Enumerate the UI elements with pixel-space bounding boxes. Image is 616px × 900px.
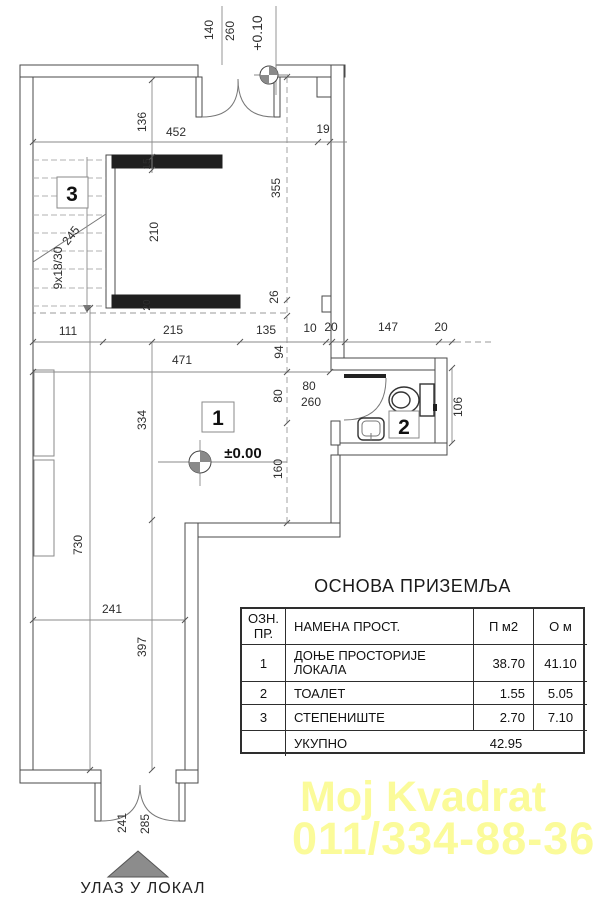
- table-row-2-area: 1.55: [474, 682, 534, 705]
- table-row-1-id: 1: [242, 645, 286, 682]
- dim-top-door-height: 260: [223, 21, 237, 41]
- dim-241-entrance: 241: [115, 813, 129, 833]
- floor-plan-sheet: 140 260 +0.10 136 452 19 15 210 20 9x18/…: [0, 0, 616, 900]
- toilet-door-width-label: 80: [302, 379, 316, 393]
- dim-452: 452: [166, 125, 186, 139]
- toilet-door-height-label: 260: [301, 395, 321, 409]
- dim-20b: 20: [434, 320, 448, 334]
- top-door-left-leaf: [196, 77, 202, 117]
- dim-136: 136: [135, 112, 149, 132]
- table-total-row: УКУПНО 42.95: [286, 731, 587, 756]
- wc-bowl-inner-icon: [392, 392, 410, 408]
- dim-94: 94: [272, 345, 286, 359]
- table-header-purpose: НАМЕНА ПРОСТ.: [286, 609, 474, 645]
- dim-160: 160: [271, 459, 285, 479]
- room-number-hall: 1: [212, 407, 224, 430]
- dim-106: 106: [451, 397, 465, 417]
- entrance-door-right-leaf: [179, 783, 185, 821]
- table-header-perimeter: О м: [534, 609, 587, 645]
- stair-run-label: 245: [59, 223, 83, 248]
- table-row-1-perimeter: 41.10: [534, 645, 587, 682]
- room-number-stairs: 3: [66, 183, 78, 206]
- dim-135: 135: [256, 323, 276, 337]
- dim-top-door-width: 140: [202, 20, 216, 40]
- dim-215: 215: [163, 323, 183, 337]
- top-door-left-swing: [202, 79, 238, 117]
- level-top-label: +0.10: [249, 15, 265, 51]
- dim-334: 334: [135, 410, 149, 430]
- table-header-designation: ОЗН. ПР.: [242, 609, 286, 645]
- table-total-label: УКУПНО: [294, 736, 347, 751]
- entrance-door-left-leaf: [95, 783, 101, 821]
- entrance-arrow-icon: [108, 851, 168, 877]
- top-door-right-leaf: [274, 77, 280, 117]
- table-row-2-id: 2: [242, 682, 286, 705]
- wc-tank-icon: [420, 384, 434, 416]
- partition-top-bar: [112, 155, 222, 168]
- table-row-3-perimeter: 7.10: [534, 705, 587, 731]
- table-total-area: 42.95: [456, 736, 556, 751]
- dim-285-entrance: 285: [138, 814, 152, 834]
- floor-plan-drawing: 140 260 +0.10 136 452 19 15 210 20 9x18/…: [0, 0, 616, 900]
- table-total-id-cell: [242, 731, 286, 756]
- dim-147: 147: [378, 320, 398, 334]
- dim-111: 111: [59, 324, 78, 338]
- table-row-2-name: ТОАЛЕТ: [286, 682, 474, 705]
- table-row-3-id: 3: [242, 705, 286, 731]
- table-row-1-area: 38.70: [474, 645, 534, 682]
- dim-80: 80: [271, 389, 285, 403]
- plan-labels: 140 260 +0.10 136 452 19 15 210 20 9x18/…: [51, 15, 465, 897]
- dim-355: 355: [269, 178, 283, 198]
- watermark-phone: 011/334-88-36: [292, 818, 595, 859]
- dim-397: 397: [135, 637, 149, 657]
- dim-19: 19: [316, 122, 330, 136]
- table-row-2-perimeter: 5.05: [534, 682, 587, 705]
- dim-26: 26: [267, 290, 281, 304]
- dim-10: 10: [303, 321, 317, 335]
- partition-bottom-bar: [112, 295, 240, 308]
- entrance-label: УЛАЗ У ЛОКАЛ: [80, 880, 205, 897]
- table-row-3-area: 2.70: [474, 705, 534, 731]
- wc-flush-icon: [433, 404, 437, 411]
- dim-730: 730: [71, 535, 85, 555]
- watermark-name: Moj Kvadrat: [292, 778, 595, 818]
- stair-steps-label: 9x18/30: [51, 246, 65, 289]
- level-zero-label: ±0.00: [224, 445, 261, 462]
- dim-15: 15: [142, 158, 153, 170]
- table-row-3-name: СТЕПЕНИШТЕ: [286, 705, 474, 731]
- dim-241-mid: 241: [102, 602, 122, 616]
- table-row-1-name: ДОЊЕ ПРОСТОРИЈЕ ЛОКАЛА: [286, 645, 474, 682]
- dim-210: 210: [147, 222, 161, 242]
- dim-471: 471: [172, 353, 192, 367]
- toilet-door-swing: [344, 378, 386, 420]
- room-number-toilet: 2: [398, 416, 410, 439]
- dim-20-wall: 20: [142, 299, 153, 311]
- wall-niches: [34, 370, 54, 556]
- top-door-right-swing: [238, 79, 274, 117]
- watermark: Moj Kvadrat 011/334-88-36: [292, 778, 595, 859]
- table-header-area: П м2: [474, 609, 534, 645]
- area-table: ОЗН. ПР. НАМЕНА ПРОСТ. П м2 О м 1 ДОЊЕ П…: [240, 607, 585, 754]
- dim-20a: 20: [324, 320, 338, 334]
- plan-title: ОСНОВА ПРИЗЕМЉА: [240, 576, 585, 597]
